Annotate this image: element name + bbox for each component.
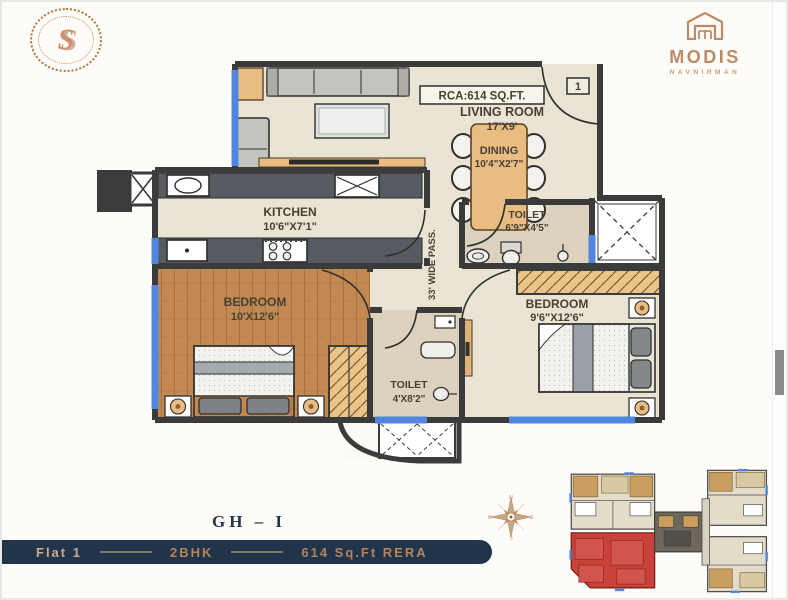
compass-w: W (488, 515, 493, 521)
bedside-table (629, 298, 655, 318)
sofa-three-seater (267, 68, 409, 96)
toilet-common-dims: 6'9"X4'5" (505, 223, 548, 234)
toilet-attached-label: TOILET (390, 379, 428, 391)
bedroom-right-label: BEDROOM (526, 297, 589, 311)
shelf (435, 316, 455, 328)
window (509, 417, 635, 424)
lobby-floor (370, 266, 462, 310)
kitchen-dims: 10'6"X7'1" (263, 221, 317, 233)
bedroom-right-dims: 9'6"X12'6" (530, 312, 584, 324)
living-room-label: LIVING ROOM (460, 105, 544, 119)
flat-area: 614 Sq.Ft RERA (301, 545, 427, 560)
keyplan-unit-bottom-right (708, 537, 767, 592)
brand-building-icon (685, 10, 725, 40)
rca-label: RCA:614 SQ.FT. (439, 91, 526, 103)
window (232, 70, 239, 166)
compass-icon: N S E W (488, 494, 534, 540)
keyplan-unit-top-left (571, 474, 654, 529)
window (152, 238, 159, 264)
window (589, 235, 596, 263)
toilet-common-label: TOILET (508, 209, 546, 221)
pillow (631, 360, 651, 388)
scrollbar-track[interactable] (772, 2, 786, 600)
living-room-dims: 17'X9' (487, 121, 518, 133)
bed-blanket (194, 362, 294, 374)
unit-code: GH – I (179, 512, 319, 532)
keyplan-core (655, 512, 704, 552)
monogram-ring-icon (38, 16, 94, 64)
keyplan-lobby (702, 499, 710, 565)
compass-e: E (530, 515, 534, 521)
key-plan (558, 465, 774, 597)
wardrobe-right (517, 270, 662, 294)
page: S MODIS NAVNIRMAN (0, 0, 788, 600)
bathtub (421, 342, 455, 358)
window (152, 285, 159, 409)
wardrobe-left (329, 346, 369, 418)
toilet-attached-dims: 4'X8'2" (393, 394, 426, 405)
bedroom-left-label: BEDROOM (224, 295, 287, 309)
dining-label: DINING (480, 145, 519, 157)
bedside-table (165, 396, 191, 417)
side-table (237, 68, 263, 100)
entrance-marker: 1 (575, 81, 581, 93)
monogram-logo: S (30, 8, 102, 72)
flat-number: Flat 1 (36, 545, 82, 560)
washbasin (467, 249, 489, 263)
pillow (247, 398, 289, 414)
flat-info-banner: Flat 1 2BHK 614 Sq.Ft RERA (2, 540, 492, 564)
kitchen-label: KITCHEN (263, 205, 316, 219)
passage-label: 33' WIDE PASS. (427, 229, 438, 300)
floor-plan: RCA:614 SQ.FT. 1 LIVING ROOM 17'X9' DINI… (97, 58, 672, 468)
keyplan-unit-top-right (708, 470, 767, 525)
bedroom-left-dims: 10'X12'6" (231, 311, 279, 323)
coffee-table (315, 104, 389, 138)
pillow (631, 328, 651, 356)
compass-n: N (509, 495, 513, 501)
dining-dims: 10'4"X2'7" (475, 159, 524, 170)
bedside-table (629, 398, 655, 418)
left-duct (97, 170, 156, 212)
scrollbar-thumb[interactable] (775, 350, 784, 395)
window (375, 417, 427, 424)
banner-divider (100, 551, 152, 553)
pillow (199, 398, 241, 414)
wc (501, 242, 521, 266)
flat-type: 2BHK (170, 545, 213, 560)
banner-divider (231, 551, 283, 553)
bedside-table (298, 396, 324, 417)
bed-blanket (573, 324, 593, 392)
compass-s: S (509, 536, 513, 541)
stove (263, 240, 307, 262)
tv-console (259, 158, 425, 167)
keyplan-unit-highlighted (571, 533, 654, 588)
